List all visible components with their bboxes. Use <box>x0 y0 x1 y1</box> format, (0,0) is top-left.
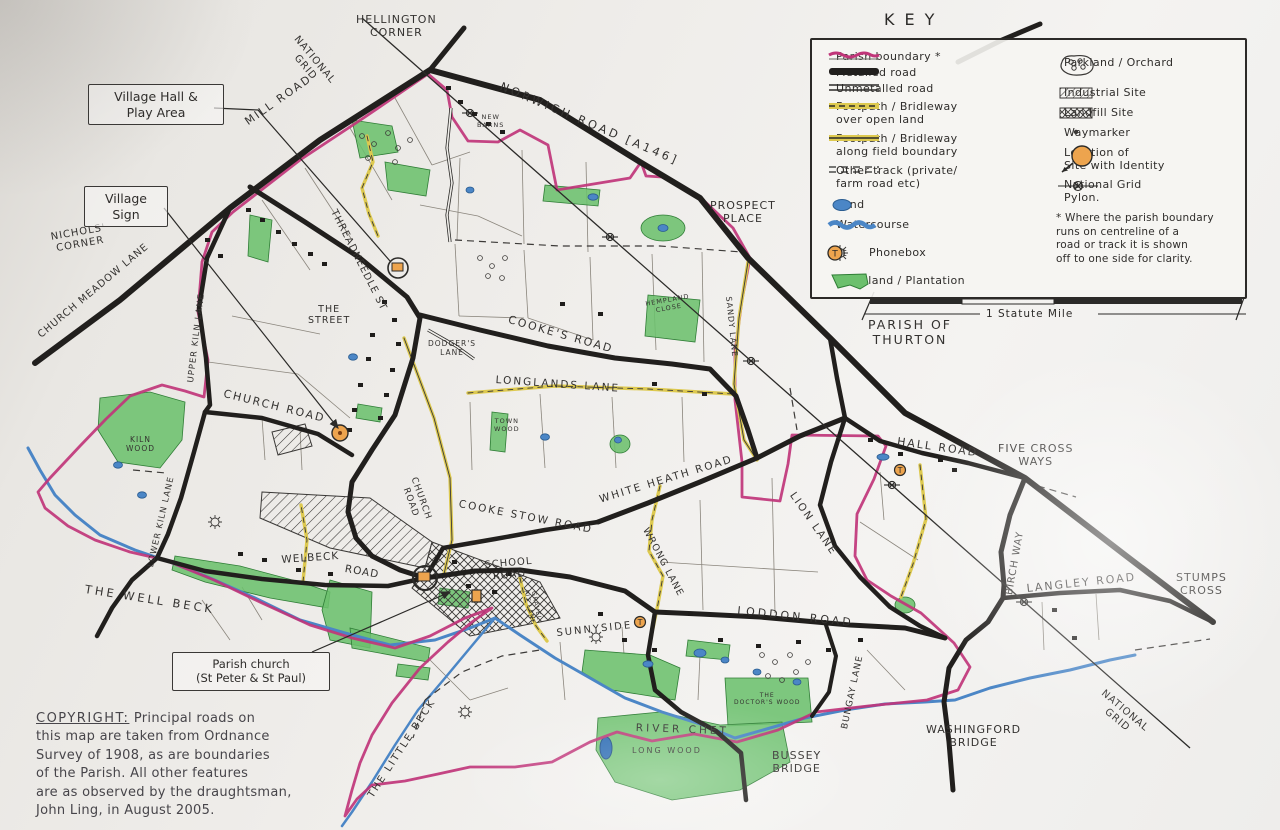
callout-parish-church: Parish church (St Peter & St Paul) <box>172 652 330 691</box>
copyright-body: Principal roads on this map are taken fr… <box>36 711 292 818</box>
key-footnote: * Where the parish boundary runs on cent… <box>1056 212 1238 267</box>
copyright-note: COPYRIGHT: Principal roads on this map a… <box>36 710 346 821</box>
callout-village-sign: Village Sign <box>84 186 168 227</box>
long-wood-pond <box>600 737 612 759</box>
neighbour-label-parish-of-thurton: PARISH OF THURTON <box>868 318 952 348</box>
svg-text:T: T <box>637 618 643 627</box>
svg-text:T: T <box>897 466 903 475</box>
road-label-school-road: SCHOOL ROAD <box>484 556 534 584</box>
place-label-new-barns: NEW BARNS <box>477 114 504 129</box>
copyright-heading: COPYRIGHT: <box>36 711 129 726</box>
svg-text:T: T <box>831 250 838 260</box>
road-bungay-lane <box>812 622 836 716</box>
place-label-five-cross-ways: FIVE CROSS WAYS <box>998 443 1074 469</box>
place-label-kiln-wood: KILN WOOD <box>126 436 155 454</box>
place-label-prospect-place: PROSPECT PLACE <box>710 200 776 226</box>
key-label: Phonebox <box>869 246 926 259</box>
place-label-washingford-bridge: WASHINGFORD BRIDGE <box>926 724 1021 750</box>
road-label-dodgers-lane: DODGER'S LANE <box>428 340 476 358</box>
place-label-town-wood: TOWN WOOD <box>494 418 520 433</box>
phonebox-icons: T T <box>635 465 906 628</box>
hand-drawn-parish-map: T T HELLINGTON CORNER NATIONAL GRID MILL… <box>0 0 1280 830</box>
place-label-doctors-wood: THE DOCTOR'S WOOD <box>734 692 800 706</box>
scale-bar-label: 1 Statute Mile <box>986 308 1073 320</box>
village-sign-site <box>332 425 348 441</box>
place-label-hellington-corner: HELLINGTON CORNER <box>356 14 437 40</box>
village-hall-site <box>388 258 408 278</box>
place-label-bussey-bridge: BUSSEY BRIDGE <box>772 750 821 776</box>
place-label-long-wood: LONG WOOD <box>632 746 702 755</box>
key-panel: Parish boundary * Metalled road Unmetall… <box>810 38 1247 299</box>
callout-village-hall: Village Hall & Play Area <box>88 84 224 125</box>
place-label-stumps-cross: STUMPS CROSS <box>1176 572 1227 598</box>
school-site <box>472 590 481 602</box>
key-title: KEY <box>884 10 944 29</box>
road-label-the-street: THE STREET <box>308 304 350 326</box>
well-beck-river-chet <box>28 448 1135 738</box>
